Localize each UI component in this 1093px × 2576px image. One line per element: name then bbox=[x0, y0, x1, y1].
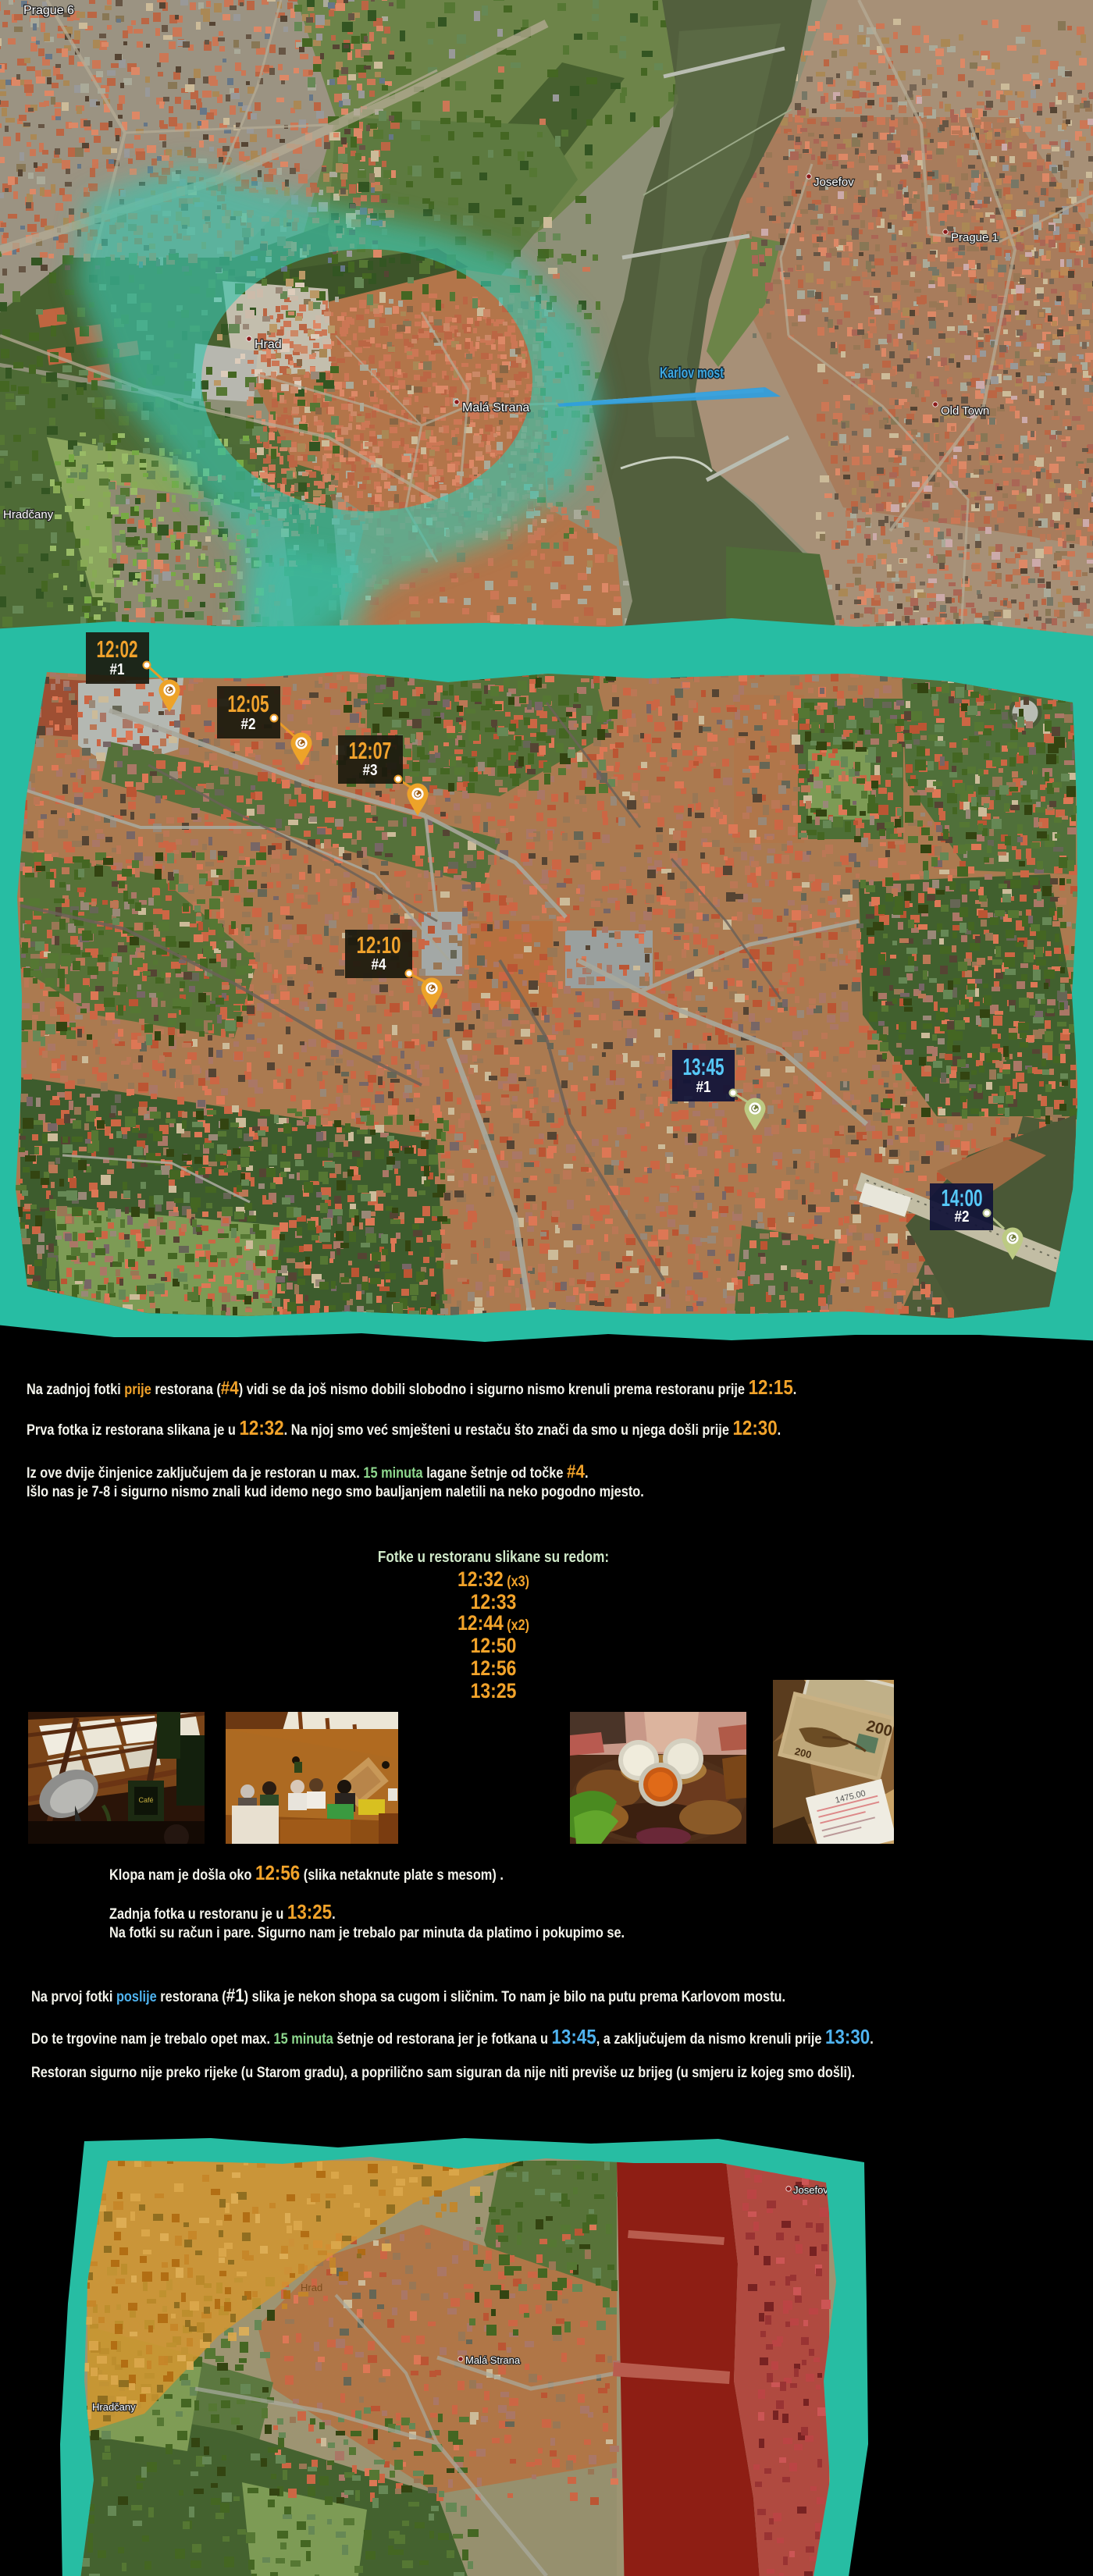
svg-text:12:02: 12:02 bbox=[97, 635, 138, 663]
svg-text:13:45: 13:45 bbox=[683, 1053, 725, 1080]
svg-text:Josefov: Josefov bbox=[814, 176, 854, 189]
svg-text:#4: #4 bbox=[372, 956, 387, 973]
svg-text:14:00: 14:00 bbox=[942, 1184, 983, 1212]
svg-text:Hradčany: Hradčany bbox=[92, 2401, 136, 2413]
svg-text:12:07: 12:07 bbox=[349, 737, 392, 764]
svg-text:12:05: 12:05 bbox=[228, 690, 269, 717]
svg-text:#3: #3 bbox=[363, 762, 378, 779]
svg-text:Hrad: Hrad bbox=[255, 338, 282, 351]
svg-text:Josefov: Josefov bbox=[793, 2184, 828, 2196]
svg-text:Prague 6: Prague 6 bbox=[23, 4, 74, 17]
svg-text:#2: #2 bbox=[241, 716, 256, 733]
svg-text:12:10: 12:10 bbox=[357, 931, 401, 959]
svg-text:#1: #1 bbox=[696, 1079, 711, 1096]
svg-text:Malá Strana: Malá Strana bbox=[462, 401, 529, 415]
svg-text:Hradčany: Hradčany bbox=[3, 508, 54, 521]
svg-text:#1: #1 bbox=[110, 661, 125, 678]
svg-text:Malá Strana: Malá Strana bbox=[465, 2354, 521, 2366]
svg-text:Café: Café bbox=[138, 1796, 153, 1804]
svg-text:Old Town: Old Town bbox=[941, 404, 989, 418]
svg-text:#2: #2 bbox=[955, 1208, 970, 1226]
svg-text:Hrad: Hrad bbox=[301, 2282, 322, 2293]
svg-text:Prague 1: Prague 1 bbox=[951, 231, 999, 244]
svg-text:Karlov most: Karlov most bbox=[660, 365, 724, 382]
